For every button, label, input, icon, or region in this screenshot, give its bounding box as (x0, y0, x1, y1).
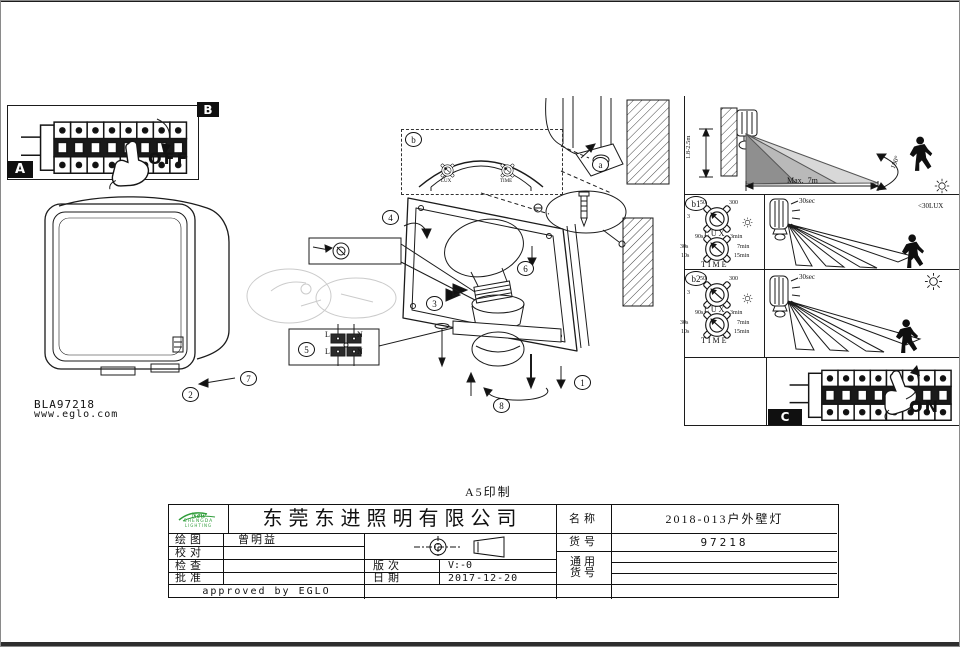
mount-height-label: 1.8-2.5m (686, 119, 693, 175)
row-value-approved (224, 573, 365, 585)
terminal-n-top: N (357, 331, 363, 339)
step-6-badge: 6 (517, 261, 534, 276)
step-2-badge: 2 (182, 387, 199, 402)
band-bottom-rule (1, 1, 959, 2)
step-8-badge: 8 (493, 398, 510, 413)
common-item-row1 (612, 552, 837, 563)
revision-label: 版次 (365, 560, 440, 573)
mini-lux-dial (439, 162, 456, 179)
row-value-checked (224, 547, 365, 560)
common-item-row2 (612, 563, 837, 574)
approved-by-note: approved by EGLO (169, 585, 365, 599)
row-label-drawn: 绘图 (169, 534, 224, 547)
ghost-hands-sketch (247, 269, 396, 323)
up-arrow-icon (467, 373, 475, 382)
empty-value-cell (612, 585, 837, 599)
time-tick-10s-b2: 10s (681, 329, 689, 335)
step-5-badge: 5 (298, 342, 315, 357)
row-label-approved: 批准 (169, 573, 224, 585)
duration-b2: 30sec (799, 273, 815, 281)
common-item-label-line2: 货号 (570, 568, 598, 579)
print-note: A5印制 (465, 486, 512, 498)
time-tick-7min-b2: 7min (737, 320, 749, 326)
logo-cell: New SHENGDA LIGHTING (169, 505, 229, 534)
lux-tick-3-b2: 3 (687, 290, 690, 296)
lux-tick-300-b2: 300 (729, 276, 738, 282)
max-distance-label: Max. 7m (787, 177, 818, 185)
row-label-inspected: 检查 (169, 560, 224, 573)
name-label: 名称 (557, 505, 612, 534)
date-label: 日期 (365, 573, 440, 585)
lamp-icon-b1 (770, 199, 800, 240)
step-4-badge: 4 (382, 210, 399, 225)
person-icon-b1 (902, 234, 924, 268)
sun-icon-lux-b2 (742, 293, 753, 304)
step-1-badge: 1 (574, 375, 591, 390)
time-dial-label-b2: TIME (701, 336, 729, 345)
row-label-checked: 校对 (169, 547, 224, 560)
revision-value: V:-0 (440, 560, 557, 573)
mini-time-label: TIME (500, 179, 512, 184)
daylight-sun-icon (924, 272, 943, 291)
time-tick-90s: 90s (695, 234, 703, 240)
slide-arrow-icon (199, 379, 208, 387)
website: www.eglo.com (34, 410, 118, 420)
wall-hatch-right (623, 218, 653, 306)
down-arrow-icon (557, 380, 565, 388)
instruction-sheet: OFF A B (0, 0, 960, 647)
mini-lux-label: LUX (441, 179, 451, 184)
terminal-n-bottom: N (357, 348, 363, 356)
time-dial-label-b1: TIME (701, 260, 729, 269)
row-divider-4 (684, 425, 959, 426)
title-block: New SHENGDA LIGHTING 东莞东进照明有限公司 绘图 曾明益 校… (168, 504, 839, 598)
step-3-badge: 3 (426, 296, 443, 311)
panel-c-label: C (768, 409, 802, 425)
on-label: ON (909, 397, 940, 416)
time-tick-15min-b2: 15min (734, 329, 749, 335)
lux-dial-label-b2: LUX (704, 305, 726, 314)
person-icon (910, 137, 933, 171)
lux-dial-label-b1: LUX (704, 229, 726, 238)
item-number: 97218 (612, 534, 837, 552)
callout-b-badge: b (405, 132, 422, 147)
step-7-badge: 7 (240, 371, 257, 386)
sun-icon-lux-b1 (742, 217, 753, 228)
row-value-inspected (224, 560, 365, 573)
terminal-l-top: L (325, 331, 330, 339)
logo-line2: LIGHTING (185, 524, 212, 528)
lux-tick-50-b2: 50 (700, 276, 706, 282)
lux-tick-50: 50 (700, 200, 706, 206)
detection-range-diagram (684, 96, 959, 194)
time-tick-90s-b2: 90s (695, 310, 703, 316)
bottom-margin-band (1, 642, 960, 646)
terminal-l-bottom: L (325, 348, 330, 356)
callout-a-badge: a (592, 157, 609, 172)
sun-icon (935, 179, 949, 193)
common-item-row3 (612, 574, 837, 585)
time-tick-3min-b2: 3min (730, 310, 742, 316)
sensor-underside-drawing (401, 129, 561, 193)
projection-symbol-icon (406, 536, 516, 558)
date-value: 2017-12-20 (440, 573, 557, 585)
product-name: 2018-013户外壁灯 (612, 505, 837, 534)
time-tick-15min: 15min (734, 253, 749, 259)
lamp-front-view (45, 197, 229, 375)
wall-hatch-top (627, 100, 669, 184)
person-icon-b2 (896, 319, 918, 353)
duration-b1: 30sec (799, 197, 815, 205)
time-tick-10s: 10s (681, 253, 689, 259)
projection-symbol-cell (365, 534, 557, 560)
mini-time-dial (499, 162, 516, 179)
main-assembly-drawing (1, 96, 684, 446)
time-tick-30s-b2: 30s (680, 320, 688, 326)
common-item-label: 通用 货号 (557, 552, 612, 585)
empty-cell-bottom (365, 585, 557, 599)
time-tick-7min: 7min (737, 244, 749, 250)
time-tick-30s: 30s (680, 244, 688, 250)
item-label: 货号 (557, 534, 612, 552)
lux-tick-3: 3 (687, 214, 690, 220)
time-tick-3min: 3min (730, 234, 742, 240)
lux-threshold-b1: <30LUX (918, 202, 943, 210)
row-value-drawn: 曾明益 (224, 534, 365, 547)
empty-label-cell (557, 585, 612, 599)
lamp-icon-b2 (770, 276, 800, 317)
lux-tick-300: 300 (729, 200, 738, 206)
company-name: 东莞东进照明有限公司 (229, 505, 557, 534)
